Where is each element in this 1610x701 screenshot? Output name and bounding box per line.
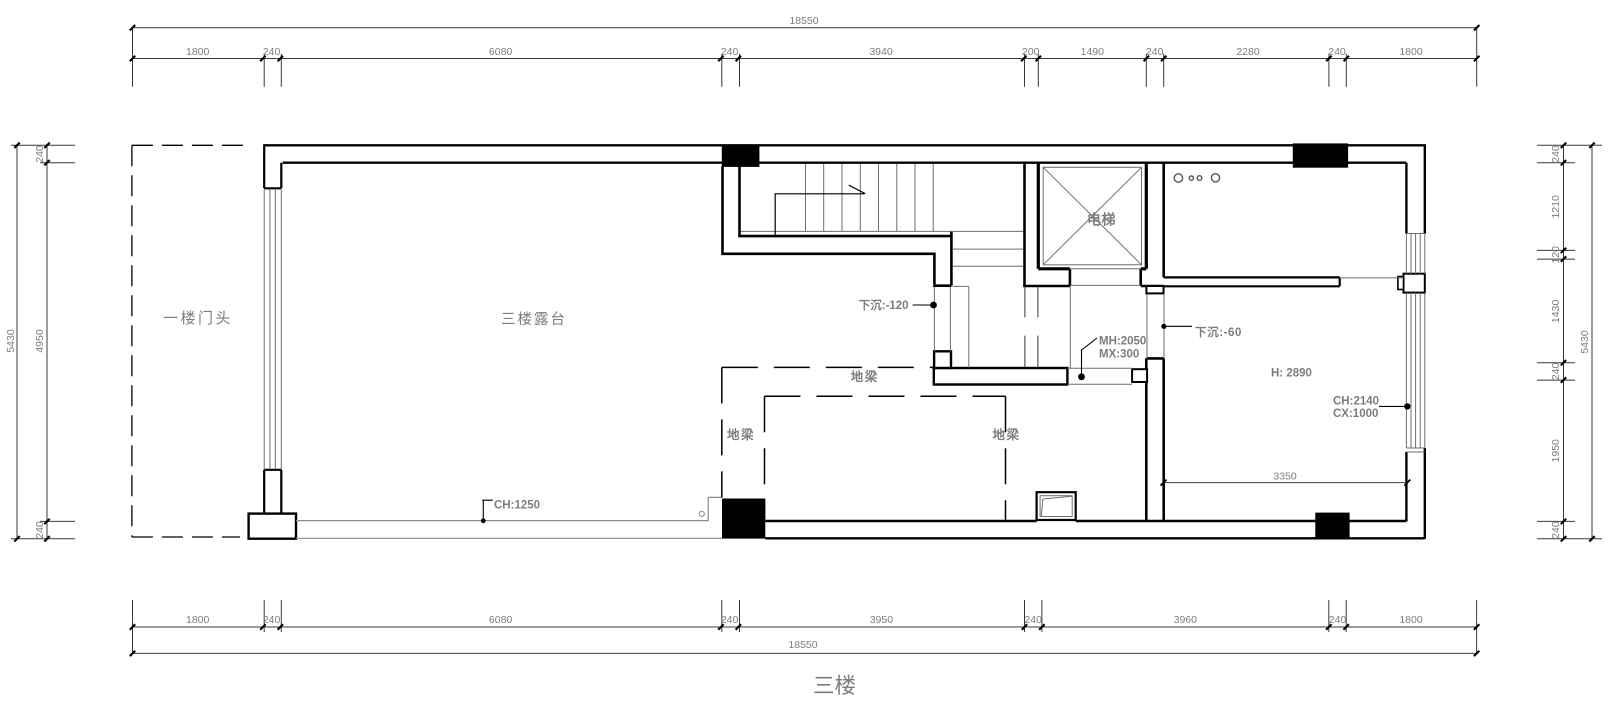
svg-text:CH:2140: CH:2140 [1333, 396, 1379, 408]
svg-text:H: 2890: H: 2890 [1271, 368, 1312, 380]
svg-text:240: 240 [263, 614, 281, 626]
svg-text:CX:1000: CX:1000 [1333, 408, 1378, 420]
svg-text:240: 240 [1550, 145, 1562, 163]
svg-text:地梁: 地梁 [992, 427, 1020, 442]
svg-text:1430: 1430 [1550, 300, 1562, 324]
svg-text:240: 240 [1146, 46, 1164, 58]
svg-text:2280: 2280 [1236, 46, 1260, 58]
svg-text:电梯: 电梯 [1087, 212, 1116, 228]
svg-text:6080: 6080 [489, 614, 513, 626]
svg-text:三楼: 三楼 [813, 674, 856, 698]
svg-text:MH:2050: MH:2050 [1099, 336, 1146, 348]
svg-text:1490: 1490 [1081, 46, 1105, 58]
svg-text:1800: 1800 [1399, 614, 1423, 626]
svg-text:240: 240 [721, 46, 739, 58]
svg-text:200: 200 [1022, 46, 1040, 58]
svg-text:5430: 5430 [1579, 330, 1591, 354]
svg-text:5430: 5430 [5, 329, 17, 353]
svg-text:240: 240 [1550, 521, 1562, 539]
svg-text:3350: 3350 [1273, 471, 1297, 483]
svg-text:240: 240 [1329, 614, 1347, 626]
svg-text:1210: 1210 [1550, 195, 1562, 219]
svg-text:240: 240 [721, 614, 739, 626]
svg-text:240: 240 [263, 46, 281, 58]
svg-text:3940: 3940 [869, 46, 893, 58]
svg-text:120: 120 [1550, 246, 1562, 264]
svg-text:MX:300: MX:300 [1099, 349, 1139, 361]
svg-text:下沉:-120: 下沉:-120 [859, 298, 909, 312]
svg-text:18550: 18550 [788, 639, 817, 651]
svg-text:1800: 1800 [186, 614, 210, 626]
svg-text:240: 240 [1550, 362, 1562, 380]
svg-text:地梁: 地梁 [727, 427, 755, 442]
svg-text:1800: 1800 [186, 46, 210, 58]
svg-text:三楼露台: 三楼露台 [501, 311, 567, 328]
svg-text:下沉:-60: 下沉:-60 [1195, 325, 1242, 339]
svg-text:18550: 18550 [789, 15, 818, 27]
svg-text:一楼门头: 一楼门头 [163, 310, 233, 327]
svg-text:地梁: 地梁 [851, 369, 879, 384]
svg-text:240: 240 [34, 521, 46, 539]
svg-text:240: 240 [1328, 46, 1346, 58]
svg-text:CH:1250: CH:1250 [494, 500, 540, 512]
svg-text:4950: 4950 [34, 329, 46, 353]
svg-text:3960: 3960 [1174, 614, 1198, 626]
svg-text:1800: 1800 [1399, 46, 1423, 58]
svg-text:1950: 1950 [1550, 439, 1562, 463]
svg-text:240: 240 [34, 145, 46, 163]
svg-text:240: 240 [1024, 614, 1042, 626]
svg-text:3950: 3950 [870, 614, 894, 626]
svg-text:6080: 6080 [489, 46, 513, 58]
